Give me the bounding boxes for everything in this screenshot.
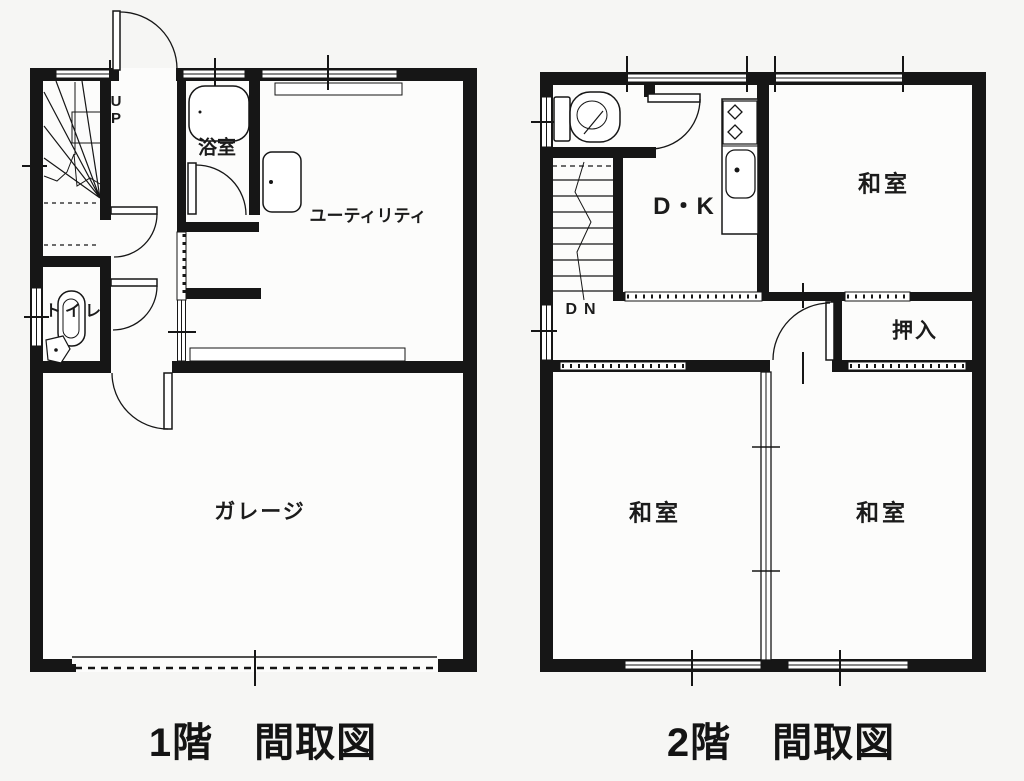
floor1-garage-label: ガレージ (214, 502, 306, 523)
floor2-oshiire-label: 押入 (892, 321, 938, 342)
floor1-sliding-door (177, 232, 186, 300)
floorplan-linework (0, 0, 1024, 781)
floor1-utility-label: ユーティリティ (310, 208, 427, 225)
floor2-plan (531, 56, 986, 686)
floor1-plan (22, 11, 477, 686)
utility-washbasin (263, 152, 301, 212)
floor2-stairs-down-label: DN (565, 302, 602, 318)
floor2-dk-label: D・K (653, 195, 715, 219)
bathtub (189, 86, 249, 141)
floor1-entrance-door (113, 11, 177, 70)
floor1-bath-label: 浴室 (198, 139, 236, 158)
floor1-stairs-up-label: UP (109, 93, 124, 127)
floor2-washitsu-right-label: 和室 (856, 502, 908, 525)
floor2-toilet-fixture (554, 92, 620, 142)
floor2-caption: 2階 間取図 (667, 723, 895, 763)
floor1-toilet-label: トイレ (45, 304, 105, 320)
floor1-caption: 1階 間取図 (149, 723, 377, 763)
floorplan-canvas: UP 浴室 ユーティリティ トイレ ガレージ DN D・K 和室 押入 和室 和… (0, 0, 1024, 781)
floor2-washitsu-top-label: 和室 (858, 173, 910, 196)
floor2-washitsu-left-label: 和室 (629, 502, 681, 525)
kitchen-counter (722, 99, 758, 234)
